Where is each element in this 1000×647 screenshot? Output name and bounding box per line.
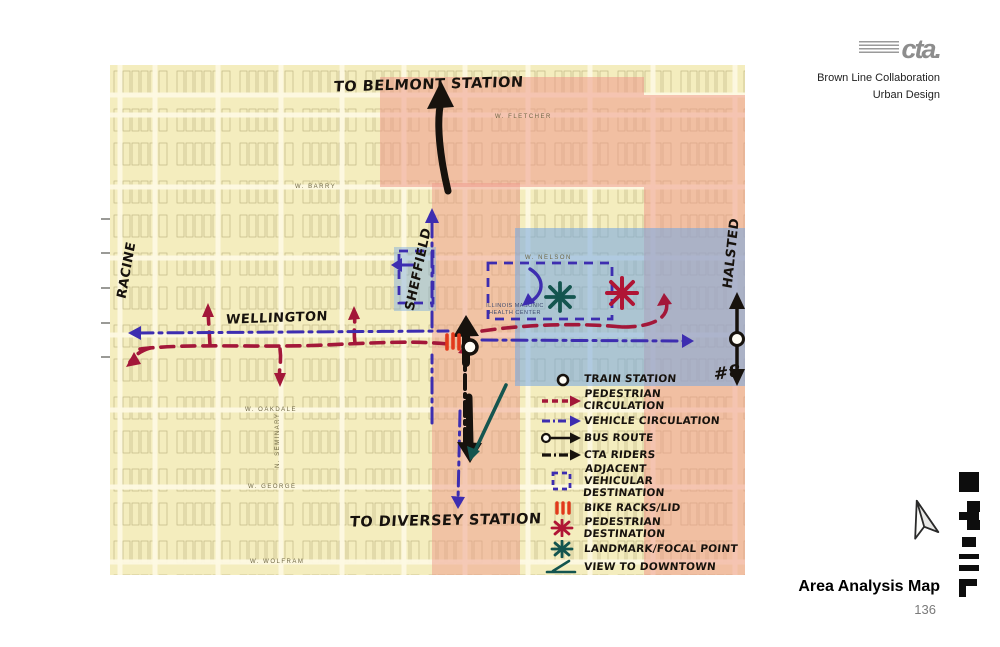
bus-route-stop-circle xyxy=(731,333,744,346)
department-title: Urban Design xyxy=(720,89,940,101)
view-to-downtown-icon xyxy=(538,558,584,575)
page-number: 136 xyxy=(680,602,936,617)
legend-item-pedestrian-destination: PEDESTRIAN DESTINATION xyxy=(538,516,740,540)
legend-item-view-to-downtown: VIEW TO DOWNTOWN xyxy=(538,558,740,575)
vehicle-route-wellington-west xyxy=(138,331,448,333)
legend-item-adjacent-vehicular-destination: ADJACENT VEHICULAR DESTINATION xyxy=(538,463,740,499)
map-legend: TRAIN STATION PEDESTRIAN CIRCULATION VEH… xyxy=(538,371,740,575)
bike-racks-marker xyxy=(447,334,459,349)
pedestrian-route-wellington xyxy=(140,342,448,349)
header-block: cta. Brown Line Collaboration Urban Desi… xyxy=(720,36,940,101)
adjacent-vehicular-destination-icon xyxy=(538,469,584,493)
legend-item-cta-riders: CTA RIDERS xyxy=(538,446,740,463)
area-analysis-map: W. FLETCHER W. BARRY W. NELSON W. OAKDAL… xyxy=(110,65,745,575)
legend-item-landmark-focal-point: LANDMARK/FOCAL POINT xyxy=(538,540,740,558)
legend-item-train-station: TRAIN STATION xyxy=(538,371,740,388)
corner-glyph xyxy=(959,579,977,597)
vehicle-route-wellington-east xyxy=(482,340,686,341)
vehicle-circulation-icon xyxy=(538,413,584,428)
north-arrow-icon xyxy=(900,493,945,545)
pedestrian-destination-marker xyxy=(607,278,637,308)
legend-item-vehicle-circulation: VEHICLE CIRCULATION xyxy=(538,412,740,429)
cta-speedlines-icon xyxy=(859,41,899,54)
view-to-downtown-line xyxy=(474,385,506,453)
bus-route-icon xyxy=(538,430,584,445)
arrow-to-diversey xyxy=(469,397,470,445)
cta-logo-text: cta. xyxy=(901,36,940,63)
arrow-to-belmont xyxy=(439,101,448,191)
document-page: { "header": { "logo": "cta.", "program":… xyxy=(0,0,1000,647)
adjacent-destination-box-2 xyxy=(488,263,612,319)
label-to-diversey: TO DIVERSEY STATION xyxy=(349,511,542,530)
pedestrian-circulation-icon xyxy=(538,393,584,408)
page-title: Area Analysis Map xyxy=(680,578,940,596)
train-station-marker xyxy=(463,340,477,354)
legend-item-pedestrian-circulation: PEDESTRIAN CIRCULATION xyxy=(538,388,740,412)
pedestrian-destination-icon xyxy=(538,519,584,537)
cta-riders-icon xyxy=(538,447,584,462)
legend-item-bike-racks: BIKE RACKS/LID xyxy=(538,499,740,516)
legend-item-bus-route: BUS ROUTE xyxy=(538,429,740,446)
footer-block: Area Analysis Map 136 xyxy=(680,578,940,617)
cta-logo: cta. xyxy=(720,36,940,63)
bike-racks-icon xyxy=(538,500,584,516)
landmark-focal-point-icon xyxy=(538,540,584,558)
train-station-icon xyxy=(538,372,584,387)
brand-glyph-column xyxy=(959,472,980,597)
program-title: Brown Line Collaboration xyxy=(720,72,940,84)
landmark-focal-point-marker xyxy=(546,283,574,311)
